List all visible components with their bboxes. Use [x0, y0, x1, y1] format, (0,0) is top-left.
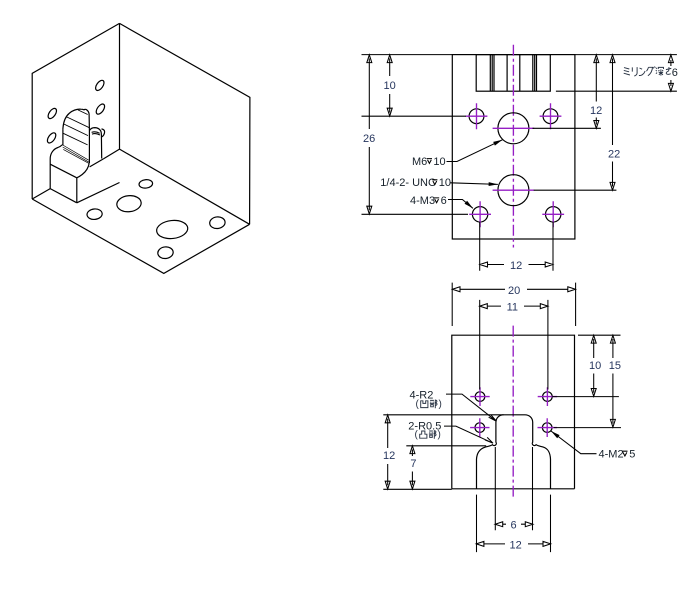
- svg-text:7: 7: [410, 458, 416, 470]
- svg-text:2-R0.5: 2-R0.5: [408, 420, 441, 432]
- svg-text:5: 5: [629, 449, 635, 461]
- svg-text:10: 10: [384, 80, 396, 92]
- svg-text:26: 26: [363, 133, 375, 145]
- svg-text:): ): [438, 430, 441, 441]
- svg-text:20: 20: [508, 285, 520, 297]
- svg-text:10: 10: [433, 156, 445, 168]
- svg-text:12: 12: [383, 450, 395, 462]
- svg-text:6: 6: [511, 520, 517, 532]
- svg-text:22: 22: [608, 149, 620, 161]
- svg-text:6: 6: [672, 67, 678, 79]
- svg-text:15: 15: [609, 360, 621, 372]
- svg-text:12: 12: [510, 539, 522, 551]
- svg-text:4-M2: 4-M2: [599, 449, 624, 461]
- svg-text:1/4-2- UNC: 1/4-2- UNC: [380, 177, 436, 189]
- svg-text:12: 12: [590, 105, 602, 117]
- svg-text:): ): [439, 399, 442, 410]
- svg-text:M6: M6: [412, 156, 427, 168]
- svg-text:10: 10: [589, 360, 601, 372]
- svg-text:6: 6: [441, 195, 447, 207]
- svg-text:4-R2: 4-R2: [410, 389, 434, 401]
- svg-text:4-M3: 4-M3: [410, 195, 435, 207]
- svg-text:10: 10: [439, 177, 451, 189]
- svg-text:12: 12: [510, 260, 522, 272]
- svg-text:11: 11: [507, 302, 518, 314]
